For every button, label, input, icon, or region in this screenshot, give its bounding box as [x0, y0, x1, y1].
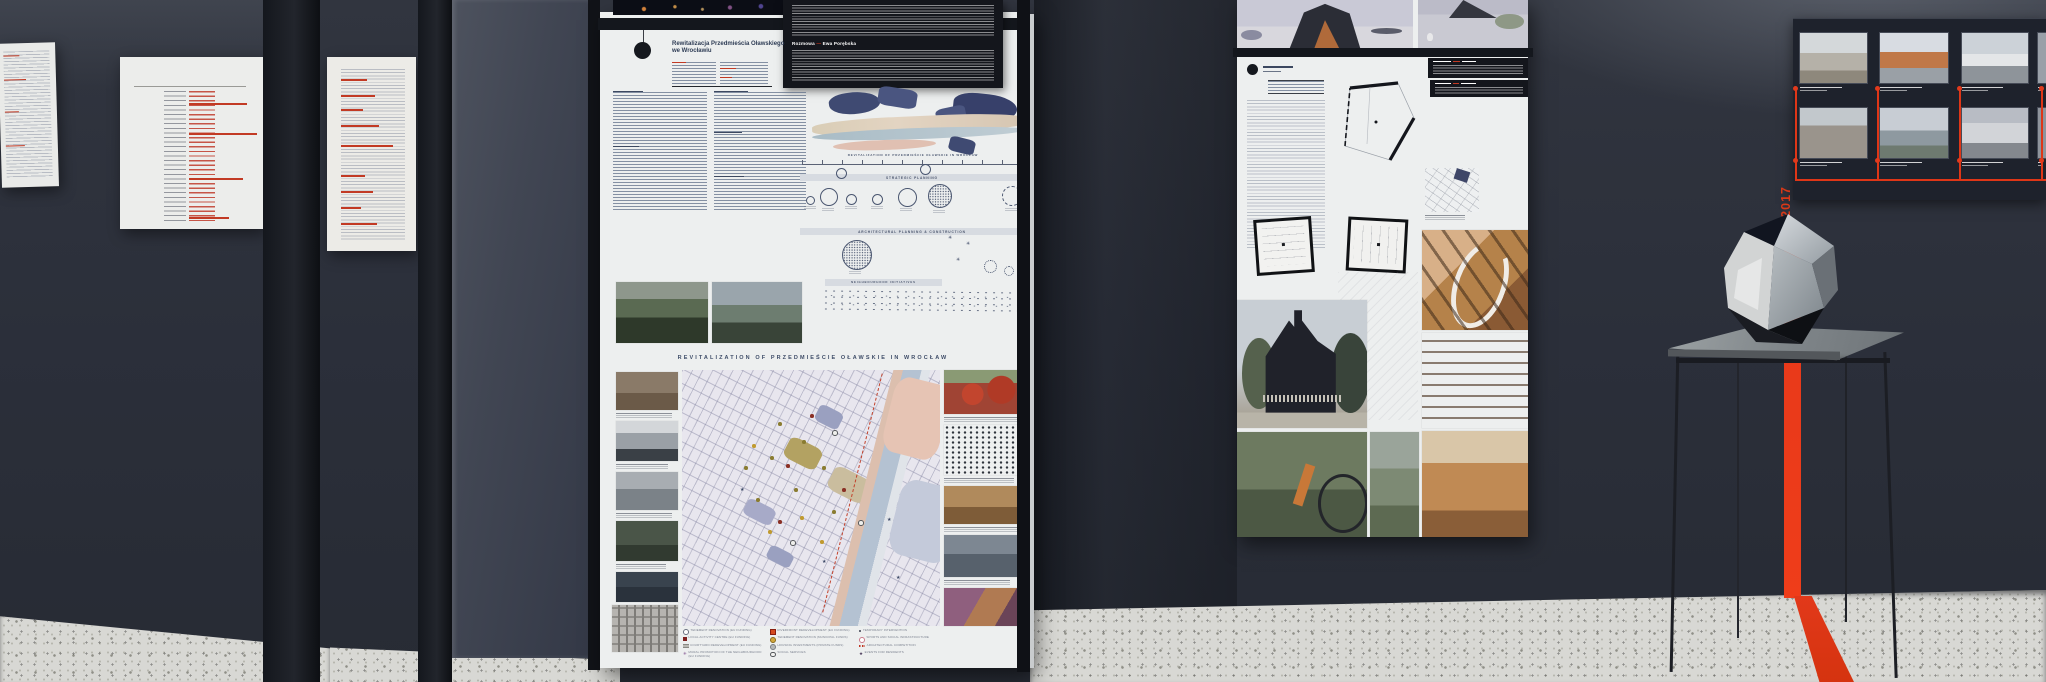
dashes-red-icon	[859, 645, 865, 647]
body-heading	[613, 146, 639, 147]
legend-label: SOCIAL SERVICES	[777, 651, 805, 654]
legend-item: SPORTS AND SOCIAL INFRASTRUCTURE	[859, 636, 945, 642]
diagram-label	[822, 208, 834, 211]
legend-item: ✳MURAL PROMOTION OF THE NEIGHBOURHOOD (E…	[683, 651, 767, 658]
credits-divider	[672, 86, 772, 87]
right-poster-subtitle	[1263, 71, 1281, 72]
site-photo	[616, 472, 678, 510]
legend-item: COURTYARD REDEVELOPMENT (EU FUNDING)	[683, 644, 767, 650]
wall-shadow-mid	[1034, 0, 1237, 620]
timeline-base-line	[1795, 179, 2046, 181]
project-render-photo	[1800, 33, 1867, 83]
diagram-circle	[872, 194, 883, 205]
bush-shape	[1495, 14, 1524, 28]
photo-caption	[616, 513, 672, 518]
timeline-board	[1793, 18, 2046, 200]
poster-c-red-heading	[341, 175, 365, 177]
section-band-architectural: ARCHITECTURAL PLANNING & CONSTRUCTION	[800, 228, 1024, 235]
map-ring-marker	[832, 430, 838, 436]
site-photo	[616, 521, 678, 561]
poster-b-rule	[134, 86, 246, 87]
square-darkred-icon	[683, 637, 687, 641]
body-heading	[613, 91, 643, 92]
poster-c-red-heading	[341, 109, 363, 111]
info-box-heading	[1433, 61, 1451, 62]
masterplan-buildings	[828, 89, 882, 118]
poster-c-red-heading	[341, 223, 377, 225]
project-render-photo-partial	[2038, 33, 2046, 83]
circle-grey-icon	[770, 644, 776, 650]
framed-plan-photo	[1253, 216, 1315, 276]
photo-caption	[944, 527, 1018, 532]
section-band-neighbourhood: NEIGHBOURHOOD INITIATIVES	[825, 279, 942, 286]
body-text-column-1	[613, 92, 707, 212]
pedestal-leg-back	[1845, 342, 1847, 622]
section-band-strategic: STRATEGIC PLANNING	[800, 174, 1024, 181]
timeline-red-line	[1959, 88, 1961, 180]
poster-c-red-heading	[341, 125, 379, 127]
poster-a-text	[3, 50, 53, 177]
timeline-node-dot	[1957, 86, 1962, 91]
project-render-photo	[1962, 33, 2028, 83]
body-heading	[714, 132, 742, 133]
poster-b-long-bar	[189, 133, 257, 135]
legend-item: TENEMENT RENOVATION (EU FUNDING)	[683, 629, 767, 635]
project-render-photo	[1962, 108, 2028, 158]
body-heading	[714, 176, 744, 177]
credits-red-term	[720, 77, 732, 78]
map-markers	[682, 370, 686, 374]
beam-shadows	[1422, 230, 1528, 330]
diagram-circle	[806, 196, 815, 205]
map-ring-marker	[858, 520, 864, 526]
commentary-heading: Rozmowa — Ewa Porębska	[792, 41, 856, 46]
commentary-heading-left: Rozmowa	[792, 41, 815, 46]
project-render-photo	[1880, 33, 1948, 83]
wood-stair-photo	[1422, 333, 1528, 428]
exhibition-logo-icon	[634, 42, 651, 59]
legend-item: HOUSING INVESTMENTS (PRIVATE FUNDS)	[770, 644, 856, 650]
legend-label: RIVERFRONT REDEVELOPMENT (EU FUNDING)	[777, 629, 849, 632]
city-map: ★ ★ ★ ★	[682, 370, 940, 626]
legend-label: COURTYARD REDEVELOPMENT (EU FUNDING)	[690, 644, 761, 647]
poster-b-long-bar	[189, 178, 243, 180]
poster-c-red-heading	[341, 95, 375, 97]
timeline-red-line	[1795, 88, 1797, 180]
poster-c-red-heading	[341, 191, 373, 193]
timeline-node-dot	[1793, 86, 1798, 91]
info-box-text	[1435, 87, 1523, 94]
diagram-circle	[898, 188, 917, 207]
interior-photo	[944, 486, 1026, 524]
poster-c-red-heading	[341, 207, 361, 209]
masterplan-watercolor-map	[812, 88, 1026, 162]
legend-label: SPORTS AND SOCIAL INFRASTRUCTURE	[866, 636, 929, 639]
cabin-render-photo-2	[1418, 0, 1528, 48]
timeline-node-dot	[1875, 158, 1880, 163]
info-box-text	[1433, 65, 1523, 75]
poster-left-c	[327, 57, 416, 251]
commentary-text	[792, 5, 994, 36]
poster-b-red-bars	[189, 91, 215, 223]
diagram-label	[871, 206, 883, 209]
poster-c-red-heading	[341, 79, 367, 81]
hammock-shape	[1371, 28, 1403, 34]
site-plan-building	[1453, 168, 1470, 182]
street-photo	[944, 535, 1026, 577]
plan-dot	[1377, 243, 1380, 246]
greenery-photo	[1237, 432, 1367, 537]
timeline-axis	[802, 164, 1024, 165]
legend-item: RIVERFRONT REDEVELOPMENT (EU FUNDING)	[770, 629, 856, 635]
orange-frame-shape	[1293, 463, 1316, 506]
photo-caption	[616, 464, 668, 469]
diagram-circle	[920, 164, 931, 175]
interior-photo	[1422, 431, 1528, 537]
photo-caption	[616, 413, 672, 418]
diagram-label	[1005, 208, 1017, 211]
credits-red-term	[672, 62, 686, 63]
river-photo	[712, 282, 802, 343]
project-render-photo	[1800, 108, 1867, 158]
square-striped-icon	[683, 644, 689, 648]
timeline-node-dot	[1875, 86, 1880, 91]
map-ring-marker	[790, 540, 796, 546]
body-text-column-2	[714, 92, 806, 212]
legend-label: TENEMENT RENOVATION (MUNICIPAL FUNDS)	[777, 636, 847, 639]
diagram-label	[804, 206, 816, 209]
path-photo	[1370, 432, 1419, 537]
legend-label: HOUSING INVESTMENTS (PRIVATE FUNDS)	[777, 644, 843, 647]
circle-outline-icon	[683, 629, 689, 635]
frame-crossbar	[1233, 48, 1533, 57]
site-plan-drawing	[1330, 78, 1422, 170]
park-photo	[616, 282, 708, 343]
info-box-heading	[1461, 83, 1476, 84]
legend-label: TEMPORARY INTERVENTION	[863, 629, 907, 632]
photo-caption	[944, 417, 1018, 422]
credits-column-1	[672, 62, 716, 84]
legend-label: LOCAL ACTIVITY CENTRE (EU FUNDING)	[688, 636, 750, 639]
commentary-text	[792, 50, 994, 82]
timeline-heading: REVITALIZATION OF PRZEDMIEŚCIE OŁAWSKIE …	[800, 153, 1026, 157]
project-render-photo	[1880, 108, 1948, 158]
display-wall-side-panel	[452, 0, 588, 658]
timeline-node-dot	[2039, 158, 2044, 163]
legend-label: TENEMENT RENOVATION (EU FUNDING)	[690, 629, 751, 632]
diagram-circle-patterned	[842, 240, 872, 270]
event-photo	[944, 588, 1026, 626]
display-frame-edge	[588, 0, 600, 670]
exhibition-room: Rozmowa — Ewa Porębska Rewitalizacja Prz…	[0, 0, 2046, 682]
poster-b-name-column	[164, 91, 186, 223]
commentary-heading-name: Ewa Porębska	[823, 41, 857, 46]
cabin-shape	[1449, 0, 1497, 18]
asterisk-purple-icon: ✳	[683, 652, 687, 656]
diagram-circle	[846, 194, 857, 205]
photo-caption	[616, 564, 666, 569]
right-poster-title	[1263, 66, 1293, 68]
timeline-red-line	[2041, 88, 2043, 180]
star-icon: ★	[896, 576, 900, 581]
diagram-circle-dotted	[984, 260, 997, 273]
info-box-heading-accent	[1453, 83, 1459, 84]
legend-item: SOCIAL SERVICES	[770, 651, 856, 658]
star-icon: ★	[887, 518, 891, 523]
legend-item: LOCAL ACTIVITY CENTRE (EU FUNDING)	[683, 636, 767, 642]
info-box-heading	[1435, 83, 1451, 84]
poster-b-long-bar	[189, 103, 247, 105]
black-house-photo	[1237, 300, 1367, 428]
legend-item: ★EVENTS FOR RESIDENTS	[859, 651, 945, 658]
legend-item: ARCHITECTURAL COMPETITION	[859, 644, 945, 650]
legend-label: ARCHITECTURAL COMPETITION	[867, 644, 916, 647]
bicycle-wheel-shape	[1318, 474, 1367, 533]
drawing-caption	[1425, 215, 1465, 220]
legend-label: EVENTS FOR RESIDENTS	[865, 651, 904, 654]
site-plan-small	[1425, 168, 1479, 212]
legend-label: MURAL PROMOTION OF THE NEIGHBOURHOOD (EU…	[688, 651, 767, 658]
fence-shape	[1263, 395, 1341, 403]
star-icon: ★	[822, 560, 826, 565]
commentary-heading-accent: —	[816, 41, 821, 46]
diagram-label	[933, 210, 945, 213]
poster-heading-en: REVITALIZATION OF PRZEDMIEŚCIE OŁAWSKIE …	[640, 355, 986, 361]
cabin-render-photo	[1237, 0, 1413, 48]
site-photo	[616, 372, 678, 410]
interior-stair-photo	[1422, 230, 1528, 330]
body-heading	[714, 91, 748, 92]
bush-shape	[1241, 30, 1262, 41]
dog-shape	[1427, 33, 1434, 42]
diagram-circle-dotted	[1004, 266, 1014, 276]
legend-item: TEMPORARY INTERVENTION	[859, 629, 945, 635]
circle-pink-icon	[859, 637, 865, 643]
site-photo	[616, 572, 678, 602]
info-box-heading-accent	[1453, 61, 1460, 62]
event-photo-red-furniture	[944, 370, 1026, 414]
credits-column-2	[720, 62, 768, 84]
star-icon: ★	[740, 488, 744, 493]
diagram-label	[849, 271, 861, 274]
poster-b-long-bar	[189, 217, 229, 219]
framed-plan-photo	[1346, 216, 1409, 273]
exhibition-logo-icon	[1247, 64, 1258, 75]
timeline-node-dot	[1957, 158, 1962, 163]
dot-navy-icon	[859, 630, 861, 632]
map-legend: TENEMENT RENOVATION (EU FUNDING) RIVERFR…	[683, 629, 945, 658]
display-frame-post	[1017, 0, 1030, 672]
star-icon: ✳	[966, 242, 970, 247]
tenement-photo	[612, 605, 678, 652]
commentary-panel: Rozmowa — Ewa Porębska	[783, 0, 1003, 88]
timeline-node-dot	[1793, 158, 1798, 163]
poster-title-pl: Rewitalizacja Przedmieścia Oławskiego we…	[672, 41, 784, 55]
poster-left-a	[0, 42, 59, 188]
photo-caption	[944, 478, 1014, 483]
crowd-photo	[944, 425, 1026, 475]
poster-c-red-heading	[341, 145, 393, 147]
star-icon: ✳	[948, 236, 952, 241]
diagram-circle	[836, 168, 847, 179]
legend-item: TENEMENT RENOVATION (MUNICIPAL FUNDS)	[770, 636, 856, 642]
night-city-photo	[613, 0, 785, 15]
timeline-node-dot	[2039, 86, 2044, 91]
circle-yellow-icon	[770, 637, 776, 643]
pedestal-leg-back	[1737, 342, 1739, 638]
diagram-circle	[820, 188, 838, 206]
info-box-dark	[1428, 58, 1528, 78]
display-frame-post	[418, 0, 452, 682]
poster-title-line1: Rewitalizacja Przedmieścia Oławskiego	[672, 41, 784, 48]
circle-white-icon	[770, 652, 776, 658]
info-box-dark	[1430, 80, 1528, 97]
photo-caption	[944, 580, 1010, 585]
display-frame-post	[263, 0, 320, 682]
polyhedron-sculpture	[1716, 212, 1842, 354]
right-poster-credits	[1268, 80, 1324, 94]
square-orange-icon	[770, 629, 776, 635]
timeline-red-line	[1877, 88, 1879, 180]
diagram-label	[845, 206, 857, 209]
credits-red-term	[720, 68, 736, 69]
plan-dot	[1282, 243, 1285, 246]
masterplan-buildings	[877, 85, 918, 110]
star-navy-icon: ★	[859, 652, 863, 656]
scatter-dots-diagram	[822, 288, 1022, 312]
info-box-heading	[1462, 61, 1476, 62]
site-photo	[616, 421, 678, 461]
diagram-circle-patterned	[928, 184, 952, 208]
poster-left-b	[120, 57, 263, 229]
display-frame-edge-highlight	[1030, 14, 1034, 668]
poster-title-line2: we Wrocławiu	[672, 48, 784, 55]
diagram-label	[900, 208, 912, 211]
star-icon: ✳	[956, 258, 960, 263]
